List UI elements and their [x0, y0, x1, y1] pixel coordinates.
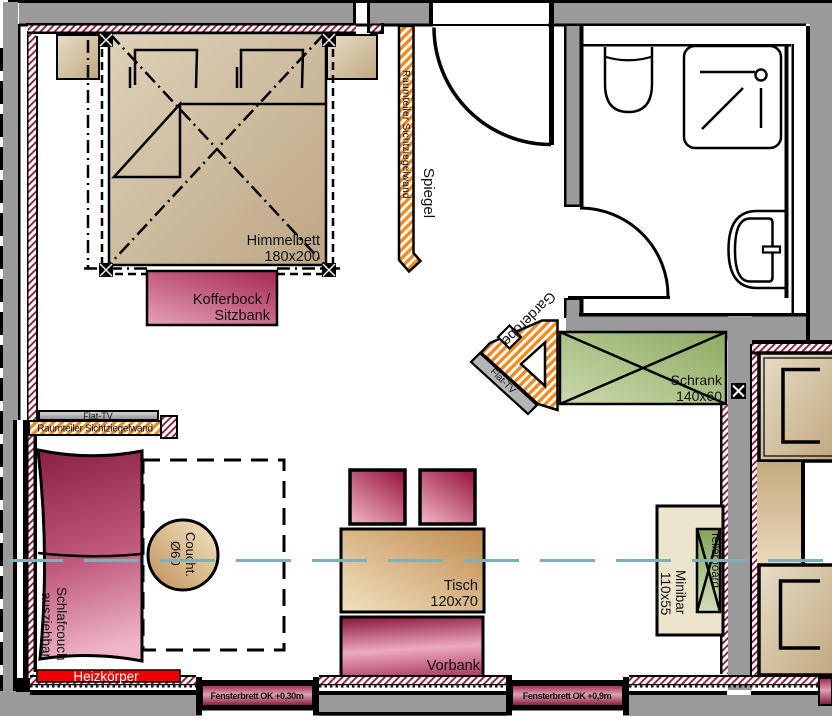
svg-text:Sitzbank: Sitzbank [214, 308, 270, 324]
svg-text:Heizkörper: Heizkörper [73, 669, 139, 684]
svg-text:140x60: 140x60 [676, 388, 722, 404]
svg-text:Raumteiler Sichtziegelwand: Raumteiler Sichtziegelwand [37, 424, 153, 435]
svg-text:Schrank: Schrank [671, 372, 723, 388]
svg-text:Vorbank: Vorbank [427, 658, 481, 674]
svg-text:Minibar: Minibar [673, 570, 688, 615]
svg-text:Fensterbrett OK +0,9m: Fensterbrett OK +0,9m [523, 691, 612, 701]
svg-text:Schlafcouch: Schlafcouch [54, 587, 69, 661]
svg-text:Raumteiler Sichtziegelwand: Raumteiler Sichtziegelwand [400, 70, 411, 199]
svg-text:ausziehbar: ausziehbar [39, 592, 54, 659]
svg-text:Fensterbrett OK +0,30m: Fensterbrett OK +0,30m [211, 691, 304, 701]
svg-text:Flat-TV: Flat-TV [83, 411, 113, 421]
svg-text:Tisch: Tisch [444, 578, 478, 594]
svg-text:Spiegel: Spiegel [420, 168, 437, 218]
svg-text:180x200: 180x200 [264, 249, 320, 265]
svg-text:120x70: 120x70 [430, 594, 478, 610]
svg-text:Himmelbett: Himmelbett [247, 233, 320, 249]
svg-text:110x55: 110x55 [658, 572, 673, 615]
svg-text:Kofferbock /: Kofferbock / [193, 292, 271, 308]
svg-text:Coucht.: Coucht. [183, 532, 198, 577]
